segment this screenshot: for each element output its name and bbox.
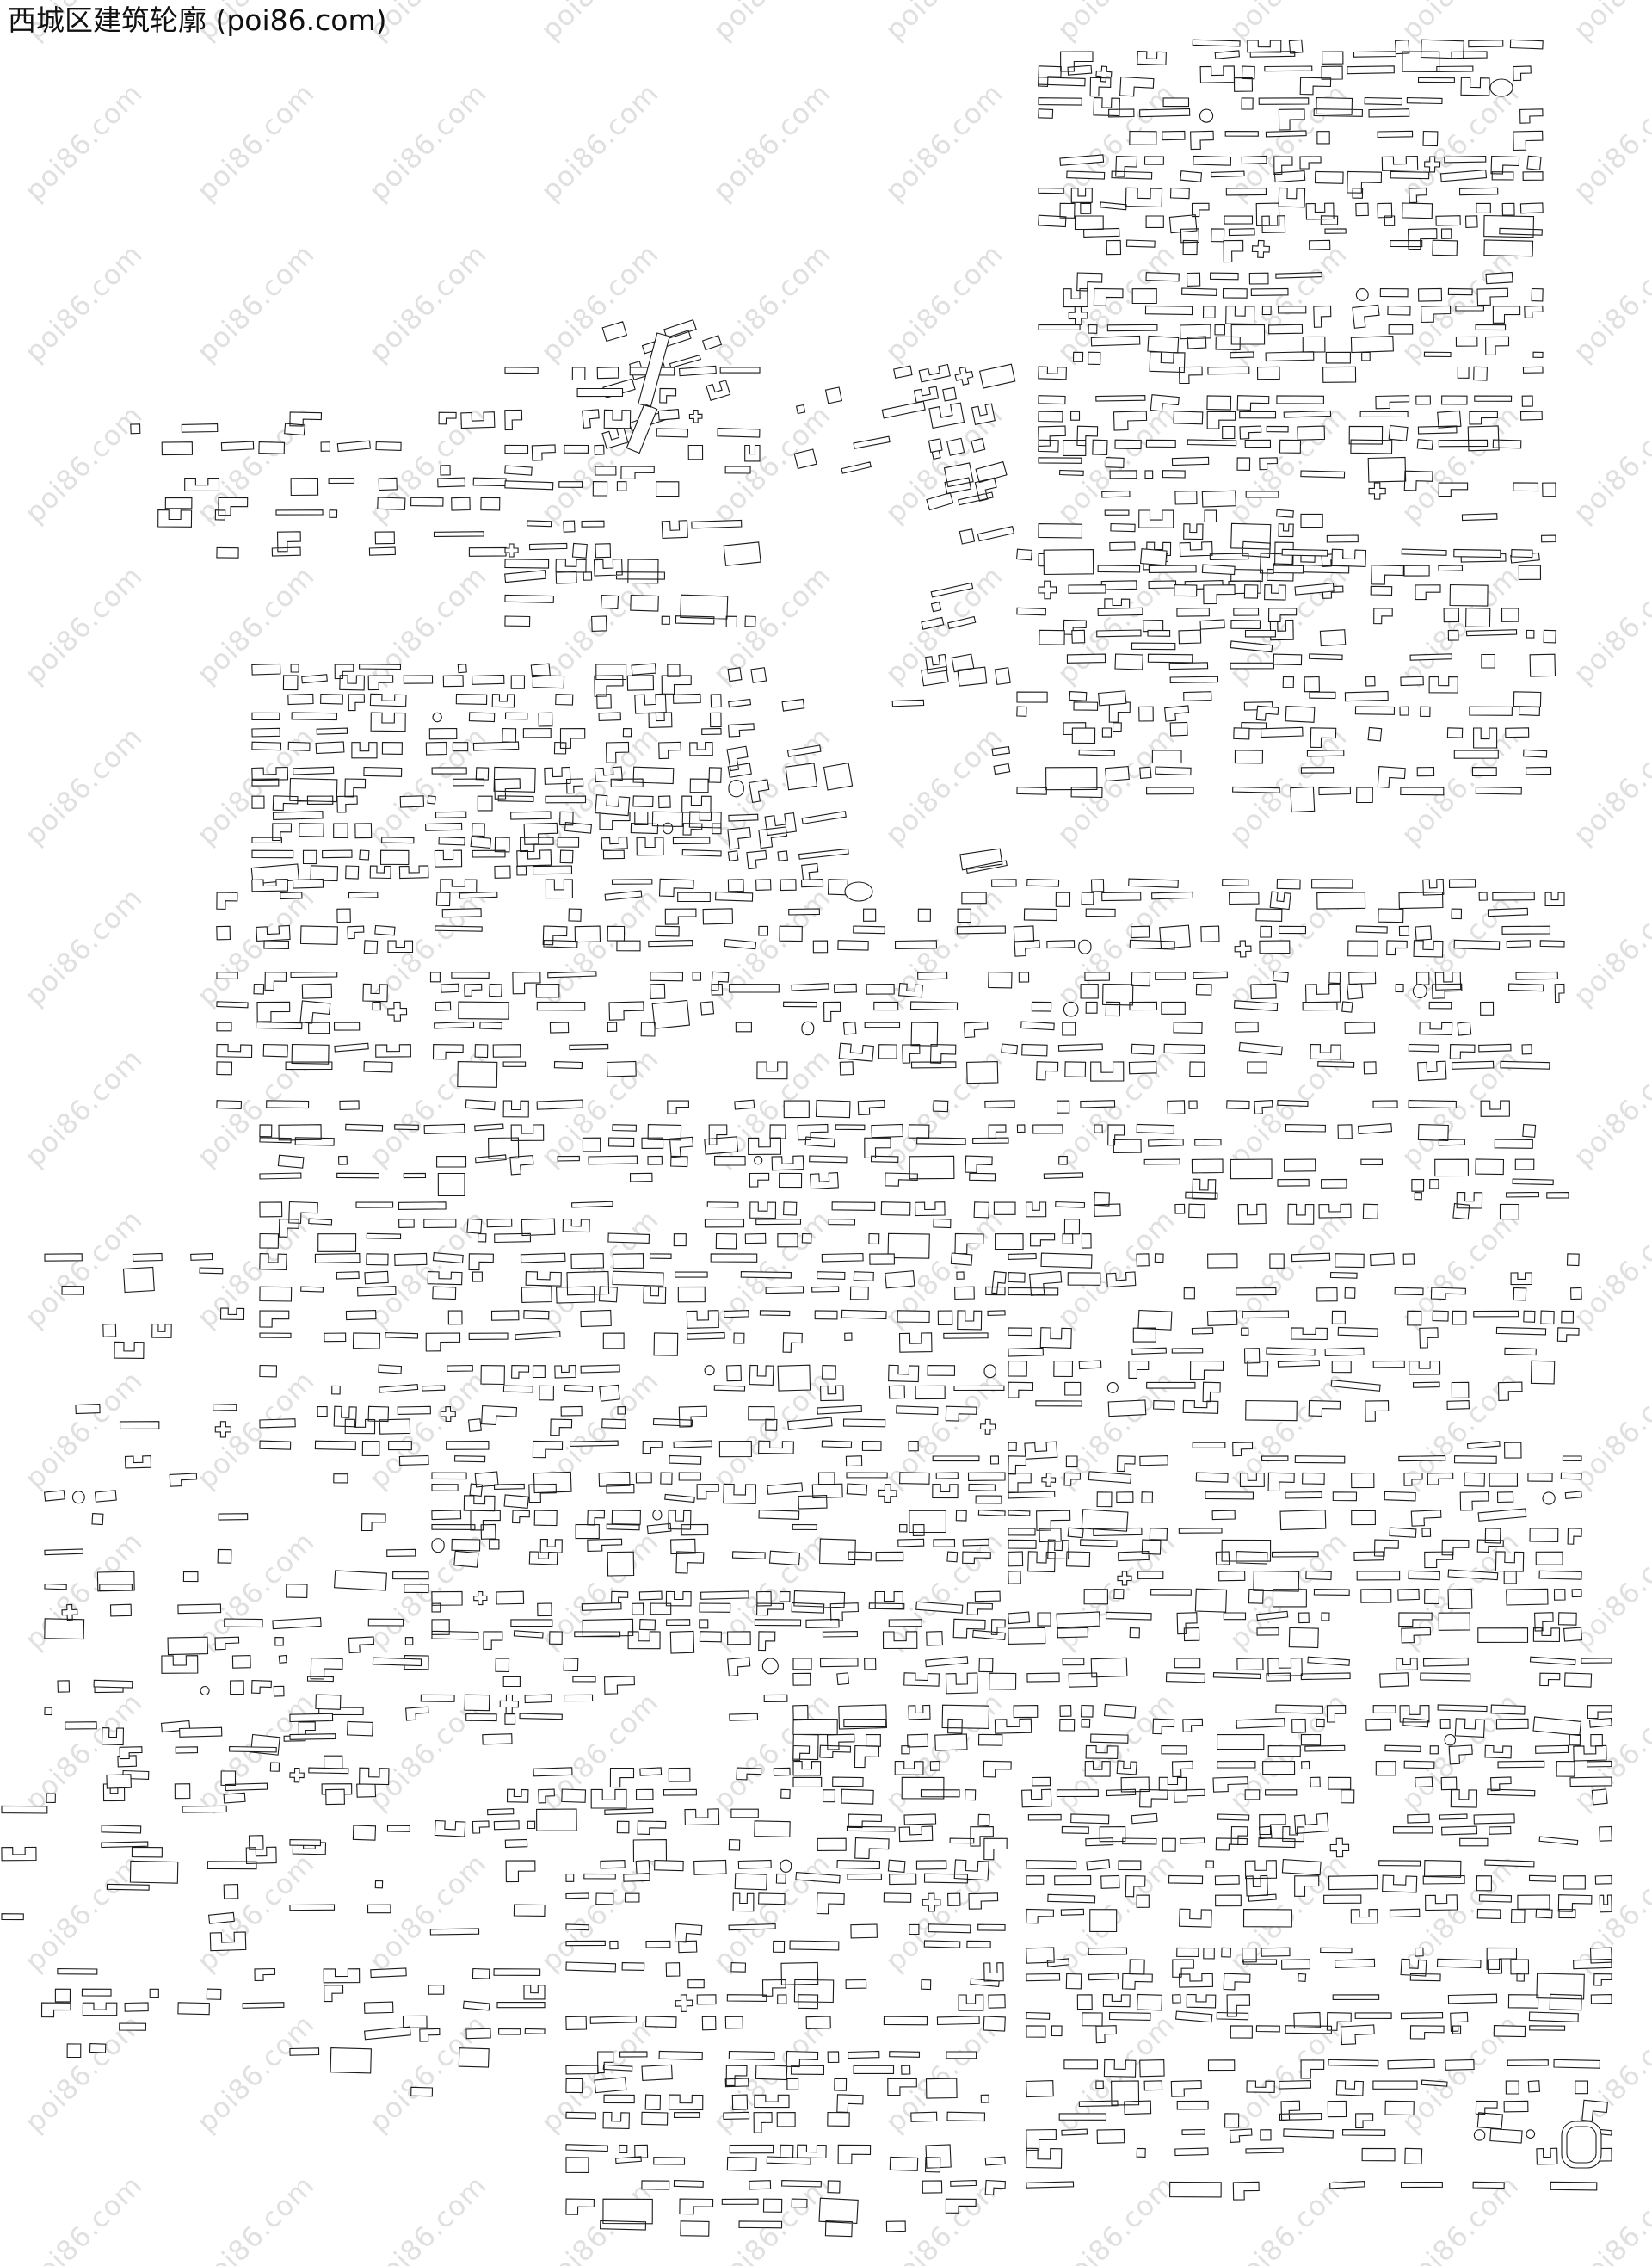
building-cluster <box>432 1455 1005 1653</box>
building-cluster <box>566 1860 1006 2237</box>
building-cluster <box>131 412 506 559</box>
building-cluster <box>505 366 761 631</box>
building-cluster <box>1017 549 1556 812</box>
building-cluster <box>2 1680 284 2057</box>
building-cluster <box>727 654 1010 881</box>
building-cluster <box>217 879 1564 1118</box>
building-cluster <box>793 1657 1612 1860</box>
building-cluster <box>1039 40 1544 150</box>
building-cluster <box>260 1253 1006 1458</box>
building-cluster <box>1301 458 1556 599</box>
building-cluster <box>1026 1860 1612 2201</box>
building-cluster <box>1039 155 1544 456</box>
building-cluster <box>1008 1253 1581 1459</box>
building-cluster <box>260 1124 1091 1258</box>
building-outlines-map <box>0 0 1652 2266</box>
building-cluster <box>45 1254 244 1437</box>
building-cluster <box>1094 1124 1569 1225</box>
map-canvas: poi86.compoi86.compoi86.compoi86.compoi8… <box>0 0 1652 2266</box>
building-cluster <box>290 1861 545 2096</box>
building-cluster <box>794 364 1014 629</box>
building-cluster <box>251 664 721 884</box>
landmark-shapes <box>626 79 1601 2168</box>
page-title: 西城区建筑轮廓 (poi86.com) <box>8 3 387 38</box>
building-cluster <box>1008 1456 1582 1648</box>
